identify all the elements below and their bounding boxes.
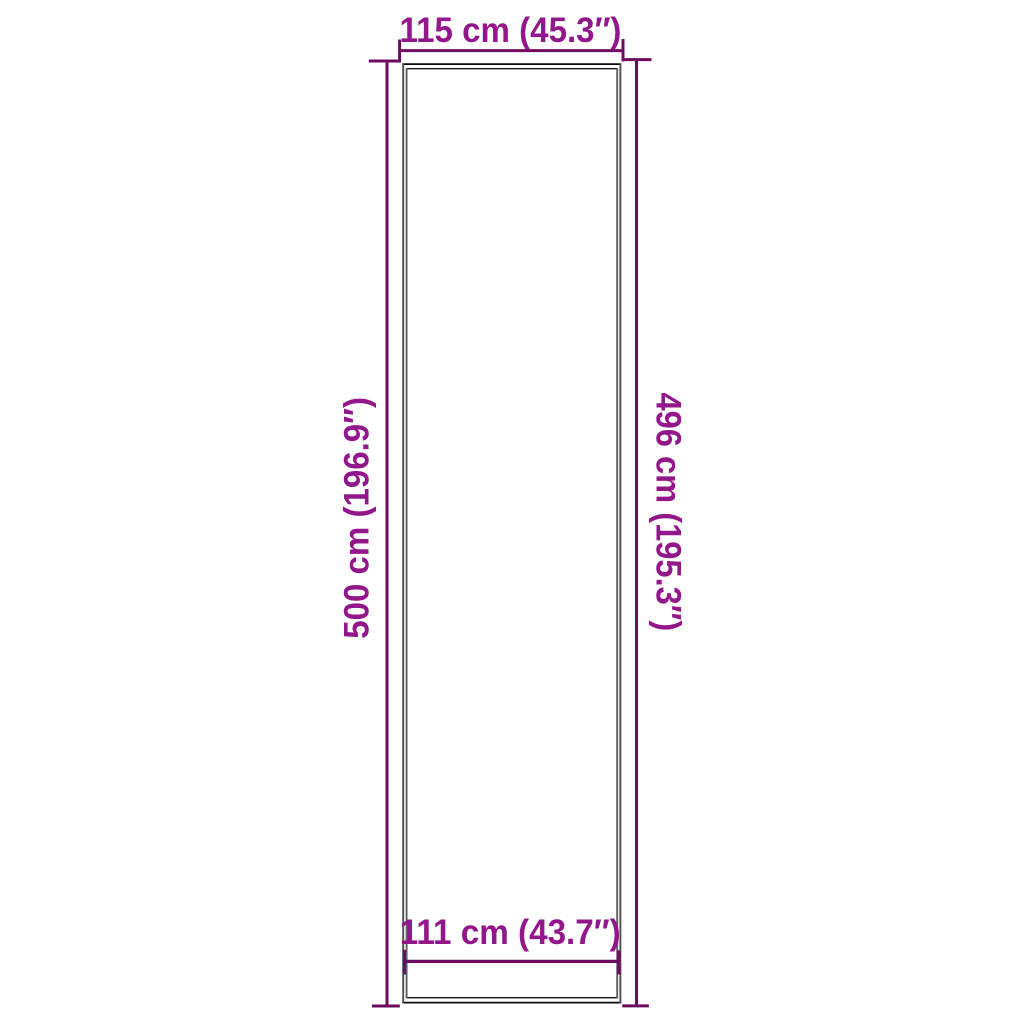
svg-text:111 cm (43.7″): 111 cm (43.7″) — [400, 912, 621, 952]
svg-text:496 cm (195.3″): 496 cm (195.3″) — [649, 393, 689, 632]
svg-text:500 cm (196.9″): 500 cm (196.9″) — [336, 397, 376, 639]
svg-text:115 cm (45.3″): 115 cm (45.3″) — [400, 10, 622, 50]
